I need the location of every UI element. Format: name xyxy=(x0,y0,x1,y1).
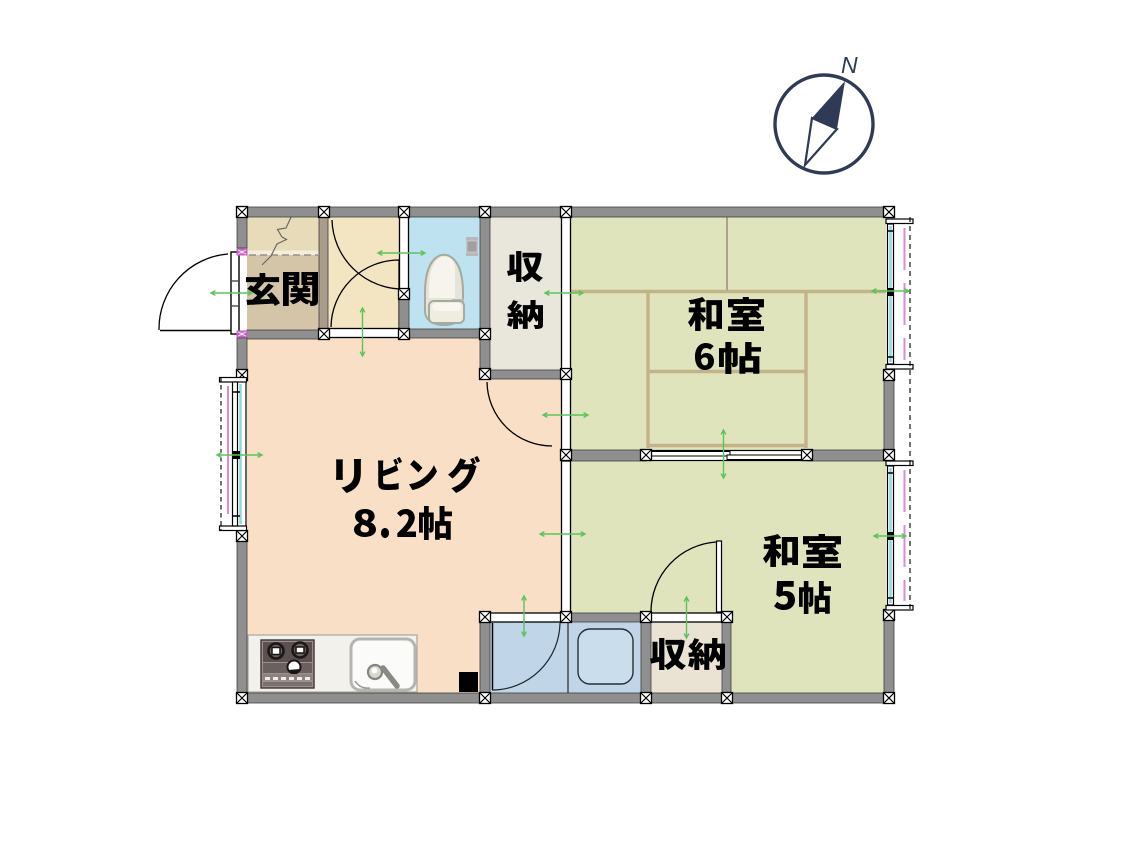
svg-text:N: N xyxy=(841,52,858,78)
